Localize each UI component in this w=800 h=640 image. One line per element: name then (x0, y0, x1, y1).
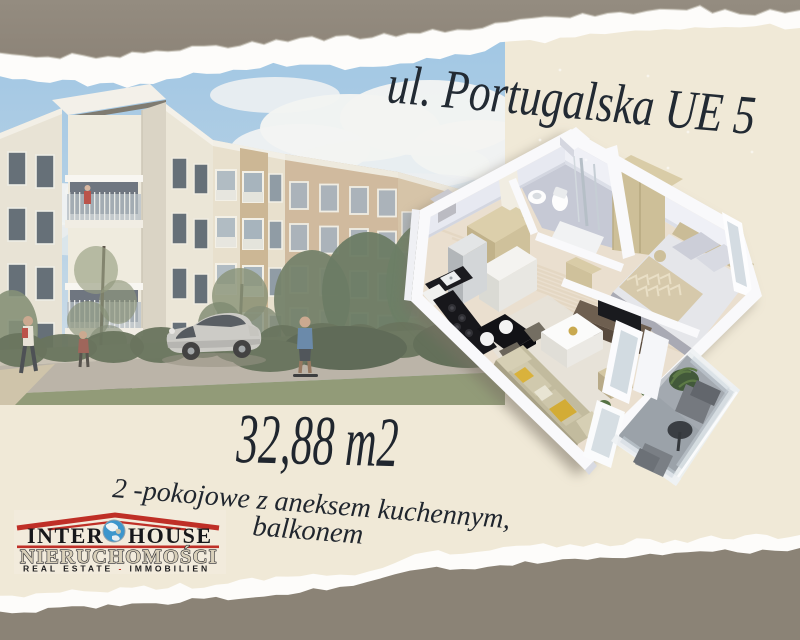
svg-text:REAL ESTATE - IMMOBILIEN: REAL ESTATE - IMMOBILIEN (23, 564, 210, 574)
svg-text:32,88 m2: 32,88 m2 (235, 399, 400, 482)
svg-text:INTER: INTER (27, 523, 104, 548)
svg-text:HOUSE: HOUSE (128, 523, 213, 548)
